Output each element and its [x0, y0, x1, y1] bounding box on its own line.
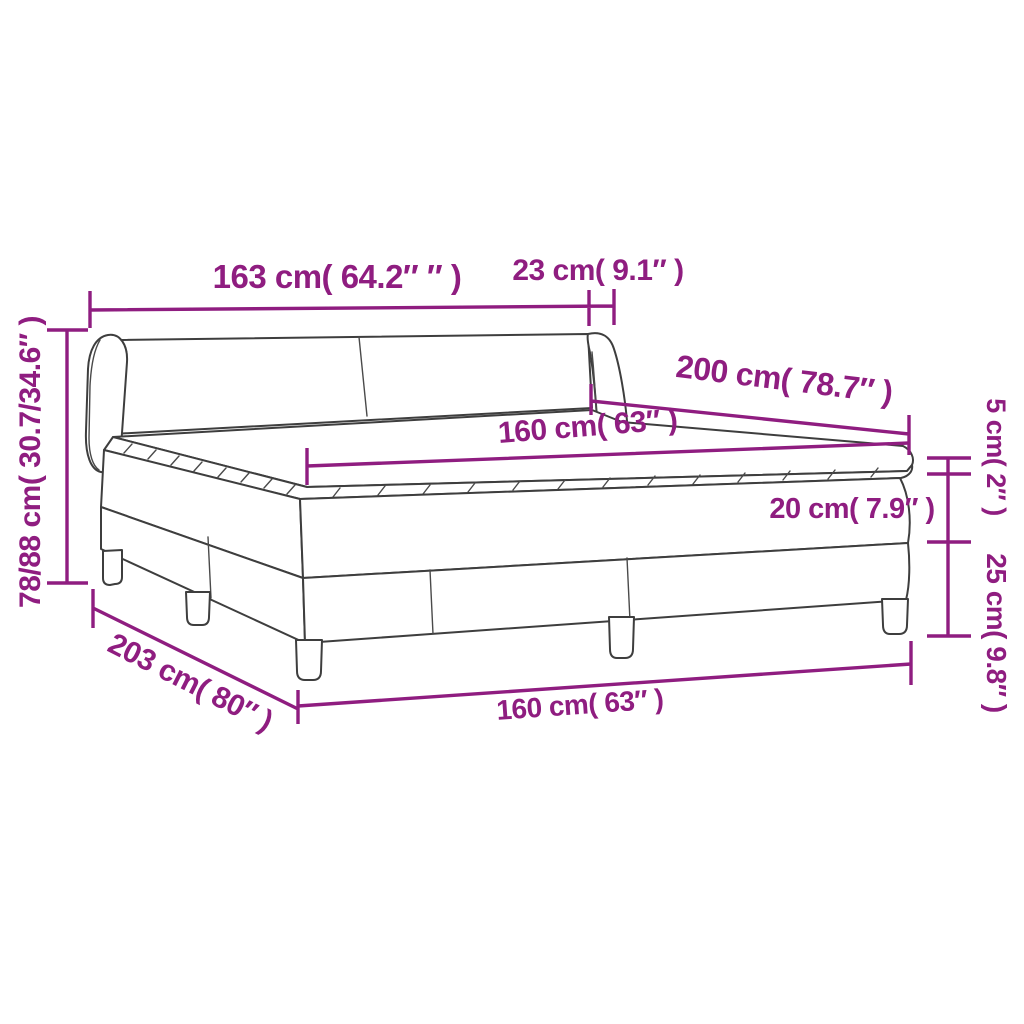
- bed-leg: [103, 550, 122, 585]
- label-base-height: 25 cm( 9.8″ ): [981, 553, 1012, 712]
- label-bed-length: 200 cm( 78.7″ ): [674, 348, 894, 410]
- label-headboard-width: 163 cm( 64.2″ ″ ): [213, 258, 462, 295]
- bed-dimension-drawing: 163 cm( 64.2″ ″ ) 23 cm( 9.1″ ) 78/88 cm…: [0, 0, 1024, 1024]
- label-mattress-height: 20 cm( 7.9″ ): [769, 493, 934, 525]
- label-bed-height: 78/88 cm( 30.7/34.6″ ): [14, 316, 47, 608]
- label-wing-depth: 23 cm( 9.1″ ): [512, 254, 683, 287]
- bed-leg: [186, 592, 210, 625]
- bed-leg: [609, 617, 634, 658]
- label-topper-height: 5 cm( 2″ ): [981, 398, 1011, 515]
- dim-right-heights-line: [927, 458, 971, 636]
- bed-leg: [296, 640, 322, 680]
- dim-bed-height-line: [47, 330, 88, 583]
- label-total-length: 203 cm( 80″ ): [103, 627, 278, 738]
- product-dimension-diagram: 163 cm( 64.2″ ″ ) 23 cm( 9.1″ ) 78/88 cm…: [0, 0, 1024, 1024]
- bed-leg: [882, 599, 908, 634]
